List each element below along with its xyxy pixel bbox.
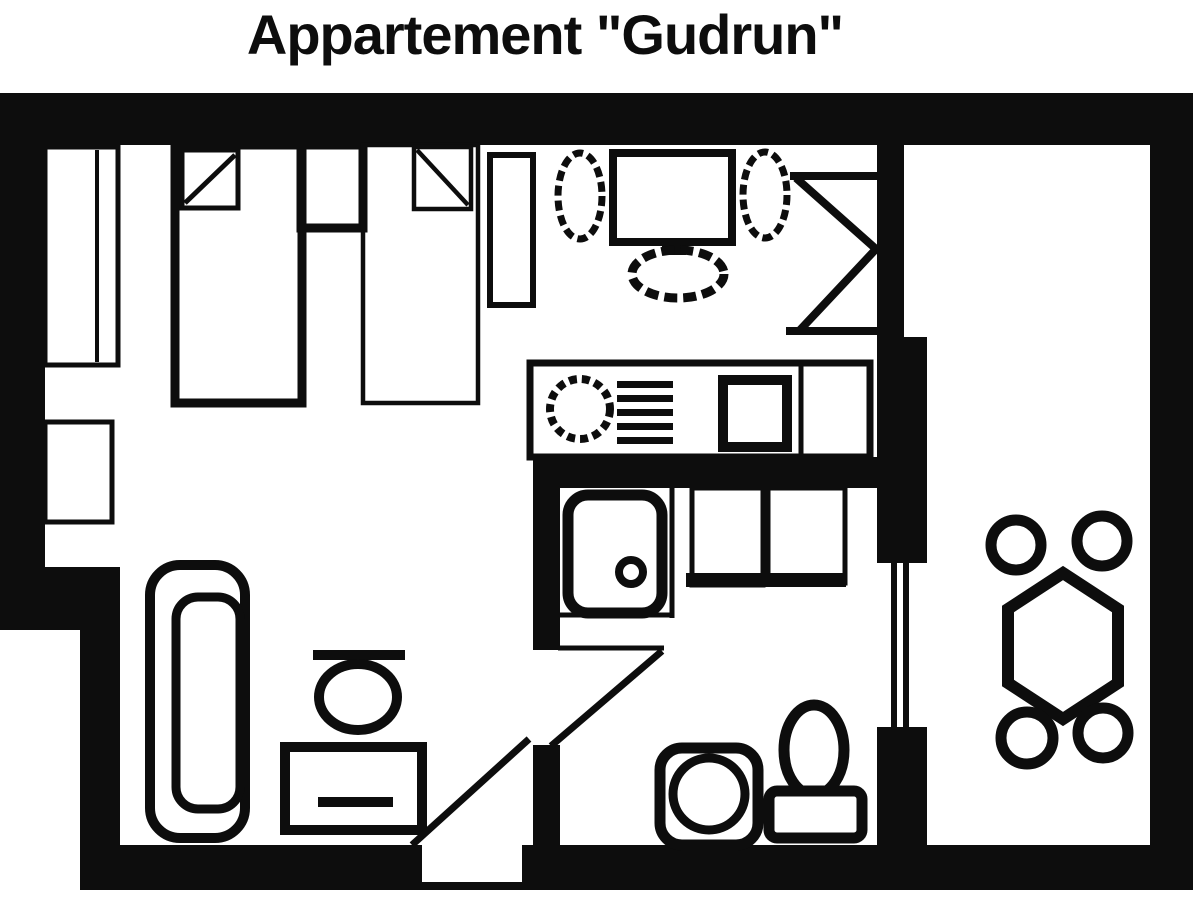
- sofa-seat: [176, 597, 240, 809]
- hexagonal-table: [1008, 573, 1118, 719]
- plant-right: [743, 152, 787, 238]
- chair-bottom-right: [1078, 708, 1128, 758]
- bathroom: [551, 488, 862, 845]
- wall-closet: [45, 422, 112, 522]
- entrance-opening: [422, 845, 522, 882]
- bed-1-pillow-fold: [185, 155, 235, 203]
- wall-under-counter: [533, 457, 877, 488]
- terrace: [991, 516, 1128, 764]
- round-sink: [550, 379, 610, 439]
- washbasin-bowl: [673, 758, 745, 830]
- wall-terrace-upper: [877, 145, 904, 337]
- bathroom-door-swing: [551, 651, 662, 746]
- wall-right: [1150, 93, 1193, 890]
- wall-left: [0, 93, 45, 630]
- wall-bath-left-upper: [533, 488, 560, 650]
- tv: [613, 153, 732, 242]
- hob-square: [723, 380, 787, 447]
- toilet-tank: [769, 791, 862, 838]
- cabinet-left: [692, 488, 763, 585]
- wall-terrace-lower: [877, 727, 927, 845]
- coffee-table-detail: [318, 797, 393, 807]
- wall-top: [0, 93, 1193, 145]
- nightstand: [301, 145, 363, 228]
- window-glazing-line-2: [903, 563, 909, 727]
- wall-terrace-mid: [877, 337, 927, 563]
- cabinet-front-edge: [686, 573, 846, 587]
- bed-2: [363, 145, 478, 403]
- bed-2-pillow-fold: [417, 150, 468, 205]
- drainer-grill: [617, 381, 673, 444]
- folding-door-wardrobe: [786, 176, 879, 331]
- chair-top-left: [991, 520, 1041, 570]
- floorplan-drawing: [0, 0, 1200, 900]
- chair-bottom-left: [1001, 712, 1053, 764]
- kitchenette: [530, 363, 870, 457]
- wall-left-step: [0, 567, 120, 630]
- armchair-backrest: [313, 650, 405, 660]
- coffee-table: [285, 747, 422, 830]
- wall-wardrobe: [45, 147, 118, 365]
- chair-top-right: [1077, 516, 1127, 566]
- shower-tray: [568, 495, 662, 613]
- floorplan-image: Appartement "Gudrun": [0, 0, 1200, 900]
- shower-drain: [619, 560, 643, 584]
- tall-shelf: [490, 155, 533, 305]
- wall-bath-left-lower: [533, 745, 560, 845]
- sleeping-area: [45, 145, 478, 522]
- oval-rug: [632, 250, 724, 298]
- toilet-bowl: [784, 705, 844, 795]
- entrance-door-swing: [412, 739, 529, 845]
- armchair-seat: [319, 664, 397, 730]
- plant-left: [558, 153, 602, 239]
- wall-bottom: [80, 845, 1193, 890]
- cabinet-right: [768, 488, 845, 583]
- window-glazing-line-1: [891, 563, 897, 727]
